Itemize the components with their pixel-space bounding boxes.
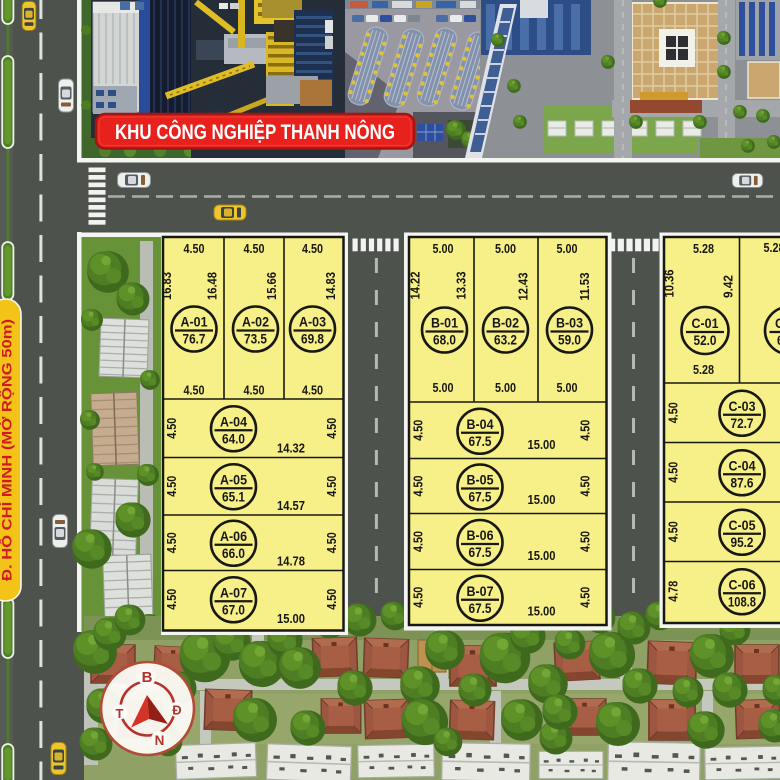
svg-text:B-03: B-03 bbox=[556, 316, 583, 331]
svg-text:C-04: C-04 bbox=[729, 458, 756, 473]
svg-text:73.5: 73.5 bbox=[244, 332, 267, 347]
svg-text:KHU CÔNG NGHIỆP THANH NÔNG: KHU CÔNG NGHIỆP THANH NÔNG bbox=[115, 119, 395, 144]
svg-text:64.0: 64.0 bbox=[222, 431, 245, 446]
svg-text:4.50: 4.50 bbox=[164, 476, 179, 497]
svg-text:A-02: A-02 bbox=[242, 315, 269, 330]
svg-text:C-05: C-05 bbox=[729, 518, 756, 533]
svg-text:4.50: 4.50 bbox=[578, 587, 593, 608]
svg-text:5.28: 5.28 bbox=[764, 240, 780, 255]
svg-text:69.8: 69.8 bbox=[301, 332, 324, 347]
svg-text:4.50: 4.50 bbox=[666, 402, 681, 423]
svg-text:C-02: C-02 bbox=[775, 316, 780, 331]
svg-text:14.32: 14.32 bbox=[277, 441, 305, 456]
svg-text:4.50: 4.50 bbox=[324, 476, 339, 497]
svg-text:10.36: 10.36 bbox=[662, 270, 677, 298]
svg-text:67.5: 67.5 bbox=[469, 601, 492, 616]
svg-text:14.22: 14.22 bbox=[408, 272, 423, 300]
svg-text:4.50: 4.50 bbox=[244, 241, 265, 256]
svg-text:4.50: 4.50 bbox=[666, 462, 681, 483]
svg-text:15.00: 15.00 bbox=[528, 548, 556, 563]
svg-text:16.48: 16.48 bbox=[205, 272, 220, 300]
svg-text:A-07: A-07 bbox=[220, 585, 247, 600]
svg-text:B-07: B-07 bbox=[467, 584, 494, 599]
svg-text:4.50: 4.50 bbox=[164, 532, 179, 553]
svg-text:5.00: 5.00 bbox=[495, 241, 516, 256]
svg-text:67.5: 67.5 bbox=[469, 545, 492, 560]
svg-text:5.00: 5.00 bbox=[433, 380, 454, 395]
svg-text:4.50: 4.50 bbox=[302, 383, 323, 398]
svg-text:72.7: 72.7 bbox=[731, 416, 754, 431]
svg-text:C-03: C-03 bbox=[729, 399, 756, 414]
svg-text:5.00: 5.00 bbox=[557, 380, 578, 395]
svg-text:4.50: 4.50 bbox=[411, 476, 426, 497]
svg-text:67.5: 67.5 bbox=[469, 434, 492, 449]
svg-text:B-02: B-02 bbox=[492, 316, 519, 331]
svg-text:Đ: Đ bbox=[172, 703, 181, 718]
svg-text:67.0: 67.0 bbox=[222, 602, 245, 617]
svg-text:B: B bbox=[142, 669, 153, 686]
svg-text:C-06: C-06 bbox=[729, 577, 756, 592]
svg-text:A-04: A-04 bbox=[220, 414, 247, 429]
svg-text:Đ. HỒ CHÍ MINH (MỞ RỘNG 50m): Đ. HỒ CHÍ MINH (MỞ RỘNG 50m) bbox=[0, 319, 15, 581]
svg-text:66.0: 66.0 bbox=[222, 546, 245, 561]
svg-text:108.8: 108.8 bbox=[728, 594, 756, 609]
svg-text:A-05: A-05 bbox=[220, 472, 247, 487]
svg-text:B-06: B-06 bbox=[467, 528, 494, 543]
svg-text:B-05: B-05 bbox=[467, 473, 494, 488]
svg-text:13.33: 13.33 bbox=[454, 272, 469, 300]
svg-text:11.53: 11.53 bbox=[577, 273, 592, 301]
svg-text:4.50: 4.50 bbox=[411, 420, 426, 441]
svg-text:4.50: 4.50 bbox=[578, 531, 593, 552]
svg-text:4.50: 4.50 bbox=[184, 383, 205, 398]
svg-text:4.50: 4.50 bbox=[324, 418, 339, 439]
svg-text:4.50: 4.50 bbox=[578, 420, 593, 441]
svg-text:15.00: 15.00 bbox=[277, 611, 305, 626]
svg-text:B-04: B-04 bbox=[467, 417, 494, 432]
svg-text:T: T bbox=[116, 706, 124, 721]
svg-text:67.5: 67.5 bbox=[469, 490, 492, 505]
svg-text:76.7: 76.7 bbox=[183, 332, 206, 347]
svg-text:15.00: 15.00 bbox=[528, 604, 556, 619]
svg-text:A-06: A-06 bbox=[220, 529, 247, 544]
svg-text:N: N bbox=[155, 733, 165, 748]
svg-text:15.66: 15.66 bbox=[264, 272, 279, 300]
svg-text:5.00: 5.00 bbox=[495, 380, 516, 395]
svg-text:87.6: 87.6 bbox=[731, 475, 754, 490]
svg-text:B-01: B-01 bbox=[431, 316, 458, 331]
svg-text:68.0: 68.0 bbox=[433, 333, 456, 348]
svg-text:4.50: 4.50 bbox=[184, 241, 205, 256]
svg-text:15.00: 15.00 bbox=[528, 437, 556, 452]
svg-text:4.50: 4.50 bbox=[244, 383, 265, 398]
svg-text:4.50: 4.50 bbox=[324, 532, 339, 553]
svg-text:A-01: A-01 bbox=[181, 315, 208, 330]
svg-text:15.00: 15.00 bbox=[528, 492, 556, 507]
svg-text:14.57: 14.57 bbox=[277, 498, 305, 513]
svg-text:4.50: 4.50 bbox=[324, 589, 339, 610]
svg-text:4.78: 4.78 bbox=[666, 581, 681, 602]
svg-text:52.0: 52.0 bbox=[694, 333, 717, 348]
svg-text:A-03: A-03 bbox=[299, 315, 326, 330]
svg-text:5.00: 5.00 bbox=[433, 241, 454, 256]
svg-text:4.50: 4.50 bbox=[666, 521, 681, 542]
svg-text:12.43: 12.43 bbox=[516, 273, 531, 301]
svg-text:5.28: 5.28 bbox=[693, 362, 714, 377]
svg-text:63.2: 63.2 bbox=[494, 333, 517, 348]
svg-text:95.2: 95.2 bbox=[731, 535, 754, 550]
svg-text:16.83: 16.83 bbox=[159, 272, 174, 300]
svg-text:4.50: 4.50 bbox=[164, 418, 179, 439]
svg-text:4.50: 4.50 bbox=[164, 589, 179, 610]
svg-text:5.28: 5.28 bbox=[693, 241, 714, 256]
svg-text:14.78: 14.78 bbox=[277, 554, 305, 569]
svg-text:4.50: 4.50 bbox=[302, 241, 323, 256]
svg-text:5.00: 5.00 bbox=[557, 241, 578, 256]
svg-text:4.50: 4.50 bbox=[578, 476, 593, 497]
svg-text:4.50: 4.50 bbox=[411, 587, 426, 608]
svg-text:9.42: 9.42 bbox=[721, 275, 736, 298]
svg-text:4.50: 4.50 bbox=[411, 531, 426, 552]
svg-text:59.0: 59.0 bbox=[558, 333, 581, 348]
svg-text:C-01: C-01 bbox=[692, 316, 719, 331]
svg-text:14.83: 14.83 bbox=[323, 272, 338, 300]
svg-text:65.1: 65.1 bbox=[222, 489, 245, 504]
